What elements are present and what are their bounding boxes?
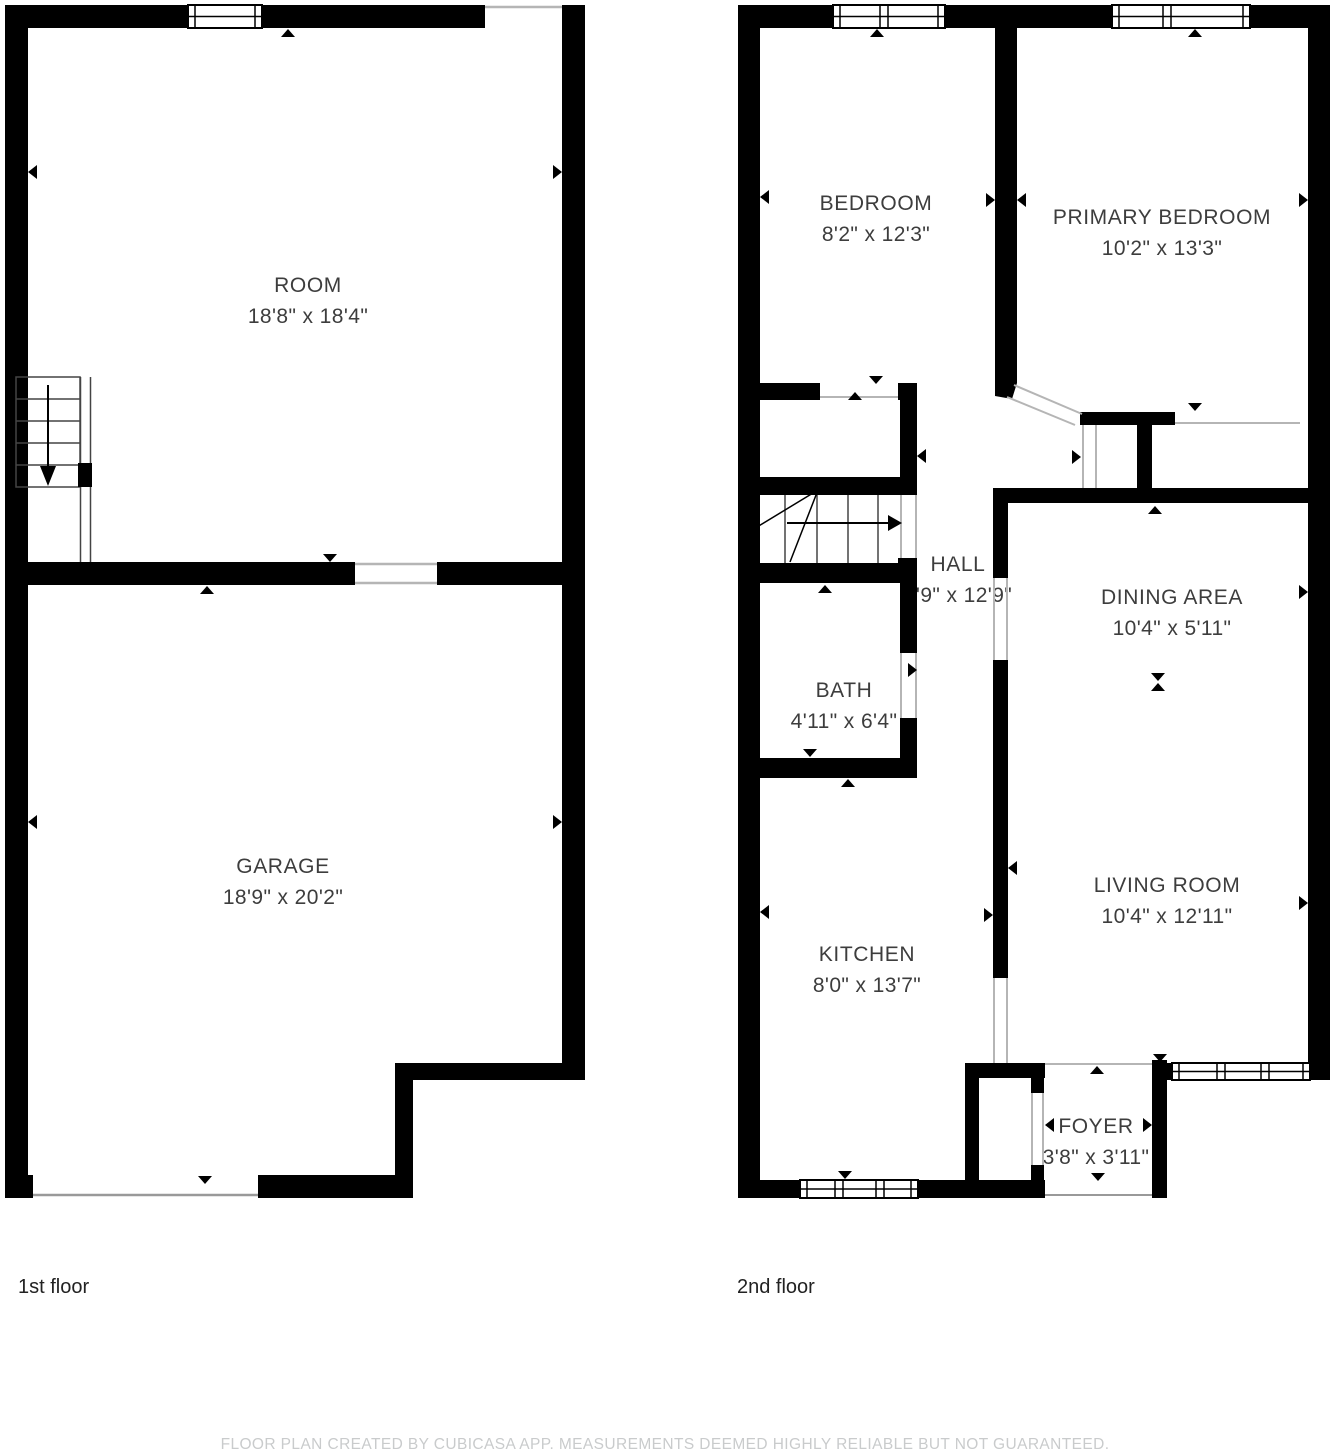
room-name: LIVING ROOM — [1094, 875, 1241, 896]
room-dims: 10'2" x 13'3" — [1053, 238, 1271, 259]
room-foyer: FOYER 3'8" x 3'11" — [1043, 1116, 1150, 1168]
room-hall: HALL 3'9" x 12'9" — [904, 554, 1012, 606]
room-dims: 10'4" x 12'11" — [1094, 906, 1241, 927]
window-living-room — [1172, 1063, 1310, 1080]
room-dims: 3'9" x 12'9" — [904, 585, 1012, 606]
room-dining-area: DINING AREA 10'4" x 5'11" — [1101, 587, 1243, 639]
floor-label-1st: 1st floor — [18, 1276, 89, 1299]
room-primary-bedroom: PRIMARY BEDROOM 10'2" x 13'3" — [1053, 207, 1271, 259]
room-dims: 8'2" x 12'3" — [820, 224, 933, 245]
room-name: HALL — [904, 554, 1012, 575]
room-name: KITCHEN — [813, 944, 921, 965]
window-room — [188, 5, 262, 28]
room-living-room: LIVING ROOM 10'4" x 12'11" — [1094, 875, 1241, 927]
walls-floor1 — [5, 5, 585, 1198]
room-bedroom: BEDROOM 8'2" x 12'3" — [820, 193, 933, 245]
room-name: DINING AREA — [1101, 587, 1243, 608]
window-bedroom — [833, 5, 945, 28]
window-primary-bedroom — [1112, 5, 1250, 28]
room-dims: 10'4" x 5'11" — [1101, 618, 1243, 639]
window-kitchen — [800, 1180, 918, 1198]
room-dims: 8'0" x 13'7" — [813, 975, 921, 996]
room-name: ROOM — [248, 275, 368, 296]
stairs-up — [757, 490, 902, 563]
room-name: FOYER — [1043, 1116, 1150, 1137]
openings-floor1 — [33, 7, 562, 1195]
floor-plan-1st — [0, 0, 600, 1210]
stairs-down — [16, 377, 92, 562]
room-name: GARAGE — [223, 856, 343, 877]
floor-plan-page: ROOM 18'8" x 18'4" GARAGE 18'9" x 20'2" … — [0, 0, 1330, 1453]
room-room: ROOM 18'8" x 18'4" — [248, 275, 368, 327]
direction-arrows-floor1 — [28, 29, 562, 1184]
room-dims: 18'8" x 18'4" — [248, 306, 368, 327]
openings-floor2 — [820, 385, 1300, 1195]
room-name: BEDROOM — [820, 193, 933, 214]
room-dims: 4'11" x 6'4" — [791, 711, 898, 732]
room-bath: BATH 4'11" x 6'4" — [791, 680, 898, 732]
room-name: BATH — [791, 680, 898, 701]
room-name: PRIMARY BEDROOM — [1053, 207, 1271, 228]
room-dims: 18'9" x 20'2" — [223, 887, 343, 908]
room-dims: 3'8" x 3'11" — [1043, 1147, 1150, 1168]
floor-label-2nd: 2nd floor — [737, 1276, 815, 1299]
room-garage: GARAGE 18'9" x 20'2" — [223, 856, 343, 908]
footer-disclaimer: FLOOR PLAN CREATED BY CUBICASA APP. MEAS… — [0, 1436, 1330, 1453]
room-kitchen: KITCHEN 8'0" x 13'7" — [813, 944, 921, 996]
